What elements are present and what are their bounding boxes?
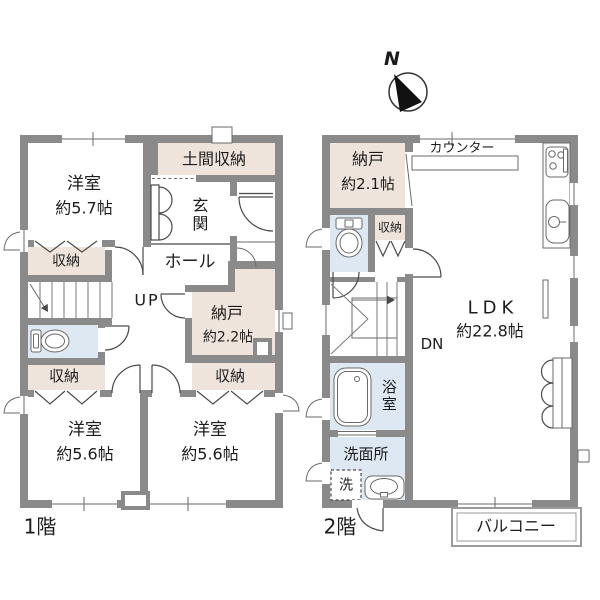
- floor-plan-page: 洋室 約5.7帖 土間収納 玄関 ホール UP 収納 納戸 約2.2帖 収納 収…: [0, 0, 600, 600]
- staircase-down-icon: [331, 282, 397, 356]
- staircase-up-icon: [30, 282, 112, 318]
- laundry-label: 洗: [339, 479, 353, 494]
- closet-east-label: 収納: [215, 369, 245, 385]
- compass-north-label: N: [384, 50, 400, 70]
- ldk-size: 約22.8帖: [456, 324, 524, 341]
- washroom-label: 洗面所: [343, 447, 388, 463]
- first-floor-plan: [4, 127, 299, 511]
- bedroom-56-west-name: 洋室: [68, 422, 102, 440]
- bathroom-label: 浴室: [380, 379, 396, 413]
- bedroom-57-size: 約5.7帖: [55, 201, 112, 218]
- second-floor-label: 2階: [324, 517, 357, 538]
- balcony-label: バルコニー: [476, 519, 556, 536]
- doma-storage-label: 土間収納: [182, 152, 246, 169]
- storage-room-1f-size: 約2.2帖: [203, 331, 253, 346]
- first-floor-label: 1階: [24, 517, 57, 538]
- storage-room-2f-name: 納戸: [352, 152, 384, 169]
- storage-room-1f-name: 納戸: [211, 306, 243, 323]
- bathtub-icon: [334, 368, 371, 426]
- stairs-down-label: DN: [421, 337, 444, 353]
- kitchen-counter: [543, 143, 570, 248]
- bedroom-57-name: 洋室: [67, 176, 101, 194]
- counter-bar: [412, 156, 548, 318]
- bedroom-56-east-name: 洋室: [193, 422, 227, 440]
- bedroom-56-west-size: 約5.6帖: [56, 447, 113, 464]
- bedroom-56-east-size: 約5.6帖: [181, 447, 238, 464]
- closet-2f-label: 収納: [378, 222, 402, 235]
- storage-room-2f-size: 約2.1帖: [341, 177, 395, 193]
- compass-icon: [389, 73, 427, 112]
- closet-west-label: 収納: [49, 369, 79, 385]
- vanity-sink-icon: [365, 476, 404, 499]
- ldk-closet: [542, 358, 573, 428]
- entrance-label: 玄関: [190, 197, 207, 233]
- ldk-name: LDK: [468, 300, 519, 319]
- stairs-up-label: UP: [134, 293, 159, 310]
- toilet-icon-second-floor: [336, 218, 362, 257]
- toilet-icon-first-floor: [31, 330, 69, 352]
- closet-north-label: 収納: [52, 255, 80, 270]
- counter-label: カウンター: [429, 142, 494, 156]
- hall-label: ホール: [165, 254, 216, 272]
